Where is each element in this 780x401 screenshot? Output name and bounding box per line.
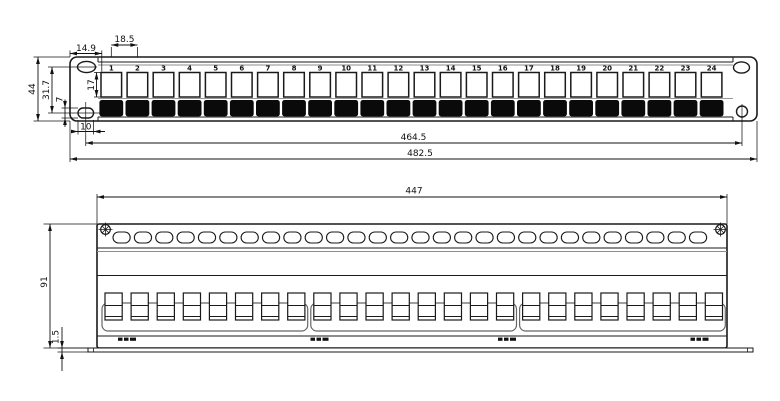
keystone-rear <box>705 293 722 320</box>
vent-slot <box>540 232 557 243</box>
keystone-rear <box>288 293 305 320</box>
vent-slot <box>412 232 429 243</box>
keystone-rear <box>575 293 592 320</box>
vent-slot <box>156 232 173 243</box>
port-connector <box>178 100 202 116</box>
vent-slot <box>647 232 664 243</box>
dimension-arrow <box>36 57 40 64</box>
dimension-arrow <box>60 352 64 359</box>
dim-pitch-label: 18.5 <box>114 35 134 45</box>
port-window <box>440 73 461 98</box>
port-window <box>545 73 566 98</box>
port-connector <box>621 100 645 116</box>
foot-mark <box>124 338 129 341</box>
foot-mark <box>510 338 516 341</box>
vent-slot <box>433 232 450 243</box>
keystone-rear <box>549 293 566 320</box>
port-connector <box>674 100 698 116</box>
mounting-slot-top-right <box>734 62 750 73</box>
vent-slot <box>604 232 621 243</box>
rear-view-drawing: 447911.5 <box>0 175 780 401</box>
dimension-arrow <box>36 114 40 121</box>
keystone-rear <box>366 293 383 320</box>
keystone-rear <box>314 293 331 320</box>
keystone-rear <box>392 293 409 320</box>
keystone-rear <box>262 293 279 320</box>
dim-hole-offset-label: 31.7 <box>42 80 52 100</box>
port-window <box>414 73 435 98</box>
port-connector <box>360 100 384 116</box>
port-number-label: 16 <box>498 65 508 73</box>
keystone-rear <box>183 293 200 320</box>
keystone-rear <box>236 293 253 320</box>
port-window <box>258 73 279 98</box>
port-connector <box>282 100 306 116</box>
dim-slot-width-label: 10 <box>80 123 92 133</box>
dim-flange-thickness: 1.5 <box>52 327 90 371</box>
foot-mark <box>311 338 316 341</box>
port-window <box>675 73 696 98</box>
port-window <box>310 73 331 98</box>
vent-slot <box>625 232 642 243</box>
vent-slot <box>327 232 344 243</box>
port-number-label: 19 <box>576 65 586 73</box>
port-window <box>336 73 357 98</box>
dimension-arrow <box>94 130 101 134</box>
foot-mark <box>118 338 123 341</box>
front-view-drawing: 123456789101112131415161718192021222324 … <box>0 0 780 175</box>
port-window <box>153 73 174 98</box>
keystone-rear <box>105 293 122 320</box>
vent-slot <box>134 232 151 243</box>
dim-overall-width-label: 482.5 <box>407 149 433 159</box>
port-connector <box>517 100 541 116</box>
port-connector <box>491 100 515 116</box>
port-window <box>284 73 305 98</box>
dim-body-width: 447 <box>97 187 727 225</box>
port-number-label: 4 <box>187 65 192 73</box>
dim-edge-offset-label: 14.9 <box>76 44 96 54</box>
port-number-label: 1 <box>109 65 114 73</box>
port-window <box>388 73 409 98</box>
port-number-label: 23 <box>681 65 691 73</box>
port-number-label: 3 <box>161 65 166 73</box>
port-connector <box>126 100 150 116</box>
port-number-label: 22 <box>655 65 665 73</box>
dimension-arrow <box>750 157 757 161</box>
port-number-label: 11 <box>367 65 377 73</box>
keystone-rear <box>470 293 487 320</box>
keystone-rear <box>627 293 644 320</box>
dimension-arrow <box>48 224 52 231</box>
vent-slot <box>348 232 365 243</box>
port-connector <box>204 100 228 116</box>
dim-slot-width: 10 <box>71 120 105 135</box>
keystone-rear <box>653 293 670 320</box>
port-connector <box>99 100 123 116</box>
vent-slot <box>241 232 258 243</box>
port-number-label: 13 <box>420 65 430 73</box>
port-number-label: 2 <box>135 65 140 73</box>
foot-mark <box>691 338 696 341</box>
port-connector <box>648 100 672 116</box>
port-connector <box>387 100 411 116</box>
dimension-arrow <box>86 141 93 145</box>
port-connector <box>152 100 176 116</box>
dimension-arrow <box>70 157 77 161</box>
port-number-label: 12 <box>394 65 404 73</box>
foot-mark <box>504 338 509 341</box>
port-window <box>519 73 540 98</box>
port-number-label: 20 <box>602 65 612 73</box>
vent-slot <box>305 232 322 243</box>
port-connector <box>543 100 567 116</box>
keystone-rear <box>209 293 226 320</box>
port-number-label: 21 <box>628 65 638 73</box>
port-number-label: 18 <box>550 65 560 73</box>
keystone-rear <box>444 293 461 320</box>
port-window <box>597 73 618 98</box>
port-window <box>127 73 148 98</box>
keystone-rear <box>340 293 357 320</box>
vent-slot <box>177 232 194 243</box>
dim-hole-span-label: 464.5 <box>401 133 427 143</box>
dim-body-height-label: 91 <box>40 276 50 287</box>
dim-flange-thickness-label: 1.5 <box>52 330 62 344</box>
port-connector <box>569 100 593 116</box>
port-connector <box>700 100 724 116</box>
port-connector <box>256 100 280 116</box>
dim-hole-offset: 31.7 <box>42 67 54 113</box>
dim-body-height: 91 <box>40 224 97 348</box>
foot-mark <box>697 338 702 341</box>
foot-mark <box>703 338 709 341</box>
dim-port-height-label: 17 <box>87 79 97 90</box>
vent-slot <box>497 232 514 243</box>
rear-bottom-flange <box>88 348 753 352</box>
port-number-label: 10 <box>341 65 351 73</box>
port-window <box>362 73 383 98</box>
keystone-rear <box>157 293 174 320</box>
keystone-rear <box>131 293 148 320</box>
keystone-rear <box>679 293 696 320</box>
vent-slot <box>262 232 279 243</box>
port-number-label: 9 <box>318 65 323 73</box>
port-window <box>101 73 122 98</box>
port-connector <box>465 100 489 116</box>
dimension-arrow <box>50 106 54 113</box>
vent-slot <box>668 232 685 243</box>
vent-slot <box>391 232 408 243</box>
dimension-arrow <box>71 130 78 134</box>
port-window <box>571 73 592 98</box>
dim-panel-height-label: 44 <box>28 83 38 95</box>
vent-slot <box>220 232 237 243</box>
port-number-label: 7 <box>265 65 270 73</box>
vent-slot <box>561 232 578 243</box>
port-window <box>205 73 226 98</box>
port-window <box>649 73 670 98</box>
port-window <box>179 73 200 98</box>
keystone-rear <box>601 293 618 320</box>
port-window <box>623 73 644 98</box>
port-number-label: 24 <box>707 65 717 73</box>
port-window <box>232 73 253 98</box>
foot-mark <box>323 338 329 341</box>
keystone-rear <box>497 293 514 320</box>
port-window <box>701 73 722 98</box>
vent-slot <box>198 232 215 243</box>
port-number-label: 14 <box>446 65 456 73</box>
port-connector <box>334 100 358 116</box>
dimension-arrow <box>735 141 742 145</box>
port-window <box>493 73 514 98</box>
vent-slot <box>583 232 600 243</box>
port-window <box>466 73 487 98</box>
vent-slot <box>284 232 301 243</box>
dim-pitch: 18.5 <box>111 35 137 57</box>
vent-slot <box>455 232 472 243</box>
vent-slot <box>369 232 386 243</box>
dim-body-width-label: 447 <box>405 187 422 197</box>
port-number-label: 17 <box>524 65 534 73</box>
port-connector <box>308 100 332 116</box>
keystone-rear <box>418 293 435 320</box>
keystone-rear <box>523 293 540 320</box>
port-connector <box>230 100 254 116</box>
port-connector <box>413 100 437 116</box>
vent-slot <box>113 232 130 243</box>
port-connector <box>595 100 619 116</box>
foot-mark <box>498 338 503 341</box>
port-number-label: 15 <box>472 65 482 73</box>
foot-mark <box>317 338 322 341</box>
dim-slot-height-label: 7 <box>55 97 65 103</box>
vent-slot <box>689 232 706 243</box>
dimension-arrow <box>63 118 67 125</box>
dimension-arrow <box>97 195 104 199</box>
vent-slot <box>476 232 493 243</box>
vent-slot <box>519 232 536 243</box>
port-number-label: 6 <box>239 65 244 73</box>
dimension-arrow <box>50 67 54 74</box>
foot-mark <box>130 338 136 341</box>
port-connector <box>439 100 463 116</box>
patch-panel-technical-drawing: 123456789101112131415161718192021222324 … <box>0 0 780 401</box>
dimension-arrow <box>720 195 727 199</box>
port-number-label: 5 <box>213 65 218 73</box>
port-number-label: 8 <box>292 65 297 73</box>
